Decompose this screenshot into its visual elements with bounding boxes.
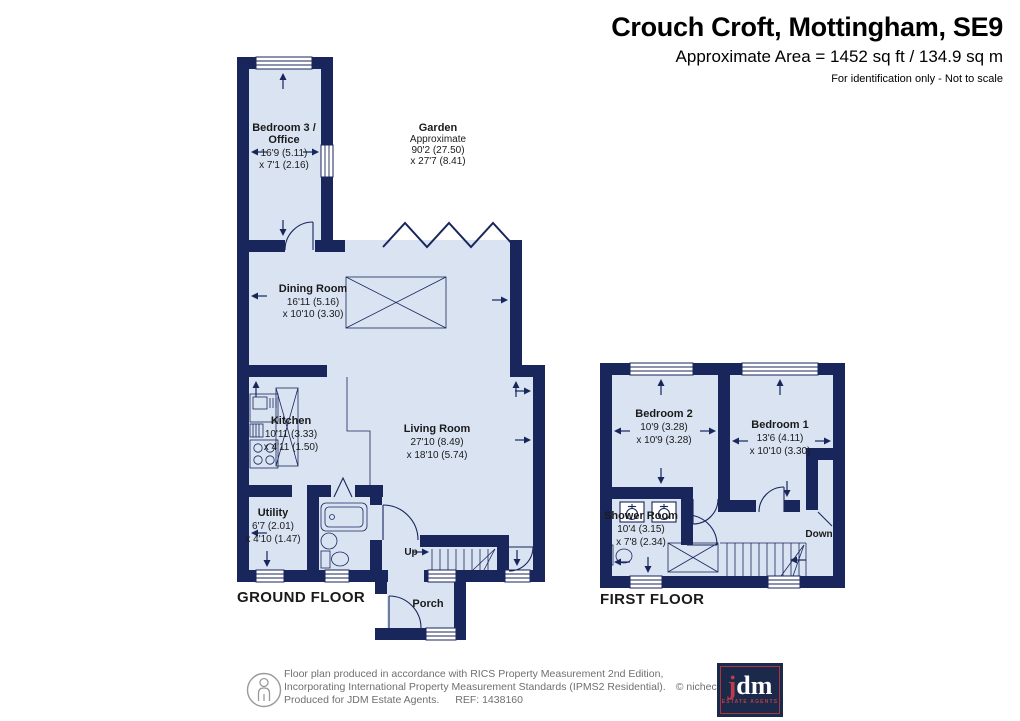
floorplan-drawing: Bedroom 3 / Office 16'9 (5.11) x 7'1 (2.… <box>0 0 1020 721</box>
surveyor-person-icon <box>245 671 283 709</box>
bedroom2-label: Bedroom 2 <box>635 408 692 420</box>
stairs-up-label: Up <box>404 547 417 558</box>
garden-qualifier: Approximate <box>410 134 467 145</box>
bedroom3-dim1: 16'9 (5.11) <box>261 148 308 159</box>
utility-dim2: x 4'10 (1.47) <box>245 534 300 545</box>
living-room-dim1: 27'10 (8.49) <box>410 437 463 448</box>
bedroom2-dim1: 10'9 (3.28) <box>640 422 688 433</box>
jdm-logo-dm: dm <box>736 671 772 700</box>
kitchen-label: Kitchen <box>271 415 312 427</box>
porch-label: Porch <box>412 598 443 610</box>
jdm-logo-j: j <box>728 671 737 700</box>
bedroom1-dim2: x 10'10 (3.30) <box>750 446 811 457</box>
garden-label: Garden <box>419 122 458 134</box>
bedroom3-dim2: x 7'1 (2.16) <box>259 160 309 171</box>
footer-produced: Produced for JDM Estate Agents. <box>284 694 439 706</box>
jdm-logo-text: jdm <box>728 675 773 697</box>
dining-room-label: Dining Room <box>279 283 348 295</box>
living-room-label: Living Room <box>404 423 471 435</box>
bedroom2-dim2: x 10'9 (3.28) <box>636 435 691 446</box>
footer-ref: REF: 1438160 <box>455 694 523 706</box>
floorplan-page: Crouch Croft, Mottingham, SE9 Approximat… <box>0 0 1020 721</box>
first-floor-title: FIRST FLOOR <box>600 591 704 608</box>
dining-room-dim1: 16'11 (5.16) <box>287 297 339 308</box>
bedroom3-label: Bedroom 3 / <box>252 122 316 134</box>
footer-line2: Incorporating International Property Mea… <box>284 681 666 693</box>
dining-room-dim2: x 10'10 (3.30) <box>283 309 344 320</box>
bedroom1-label: Bedroom 1 <box>751 419 808 431</box>
utility-dim1: 6'7 (2.01) <box>252 521 294 532</box>
living-room-dim2: x 18'10 (5.74) <box>407 450 468 461</box>
footer-attribution: Floor plan produced in accordance with R… <box>284 668 761 707</box>
shower-room-dim2: x 7'8 (2.34) <box>616 537 666 548</box>
shower-room-label: Shower Room <box>604 510 678 522</box>
utility-label: Utility <box>258 507 289 519</box>
footer-line1: Floor plan produced in accordance with R… <box>284 668 663 680</box>
ground-floor-plan: Bedroom 3 / Office 16'9 (5.11) x 7'1 (2.… <box>237 57 545 640</box>
first-floor-plan: Bedroom 2 10'9 (3.28) x 10'9 (3.28) Bedr… <box>600 363 845 608</box>
stairs-down-label: Down <box>805 529 832 540</box>
garden-dim2: x 27'7 (8.41) <box>410 156 465 167</box>
bedroom3-label2: Office <box>268 134 299 146</box>
jdm-logo-tagline: ESTATE AGENTS <box>722 699 779 705</box>
garden-dim1: 90'2 (27.50) <box>411 145 464 156</box>
jdm-logo: jdm ESTATE AGENTS <box>717 663 783 717</box>
bedroom1-dim1: 13'6 (4.11) <box>757 433 804 444</box>
kitchen-dim1: 10'11 (3.33) <box>265 429 317 440</box>
kitchen-dim2: x 4'11 (1.50) <box>264 442 319 453</box>
ground-floor-title: GROUND FLOOR <box>237 589 365 606</box>
jdm-logo-frame: jdm ESTATE AGENTS <box>720 666 780 714</box>
shower-room-dim1: 10'4 (3.15) <box>617 524 665 535</box>
